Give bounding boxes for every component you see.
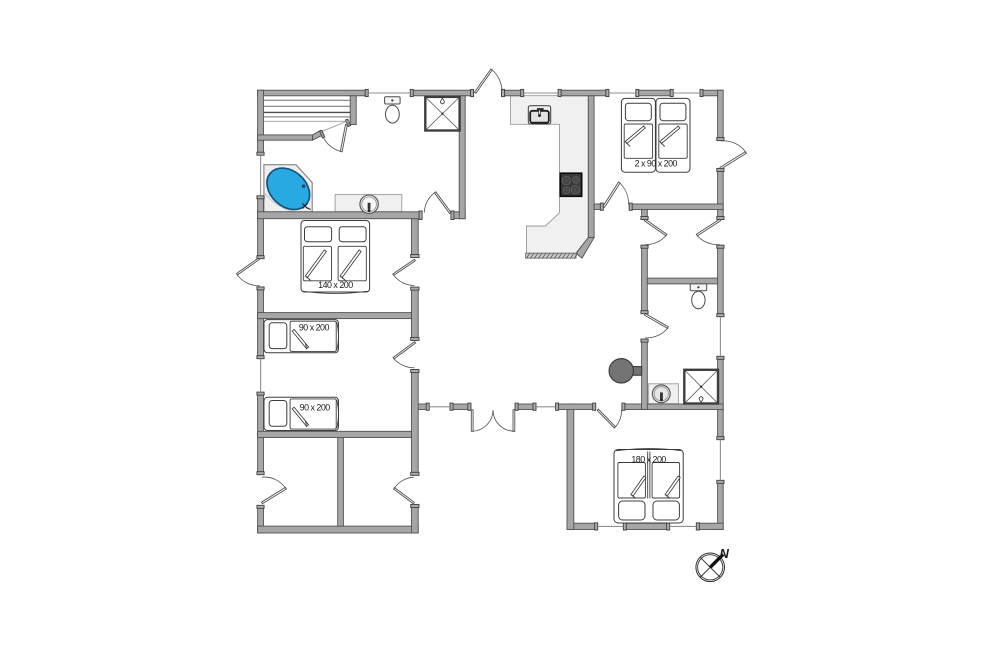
svg-text:180 x 200: 180 x 200	[631, 454, 666, 464]
svg-text:2 x 90 x 200: 2 x 90 x 200	[635, 159, 678, 169]
svg-text:N: N	[720, 546, 730, 561]
svg-text:90 x 200: 90 x 200	[300, 403, 331, 413]
svg-text:140 x 200: 140 x 200	[318, 280, 353, 290]
svg-text:90 x 200: 90 x 200	[299, 322, 330, 332]
